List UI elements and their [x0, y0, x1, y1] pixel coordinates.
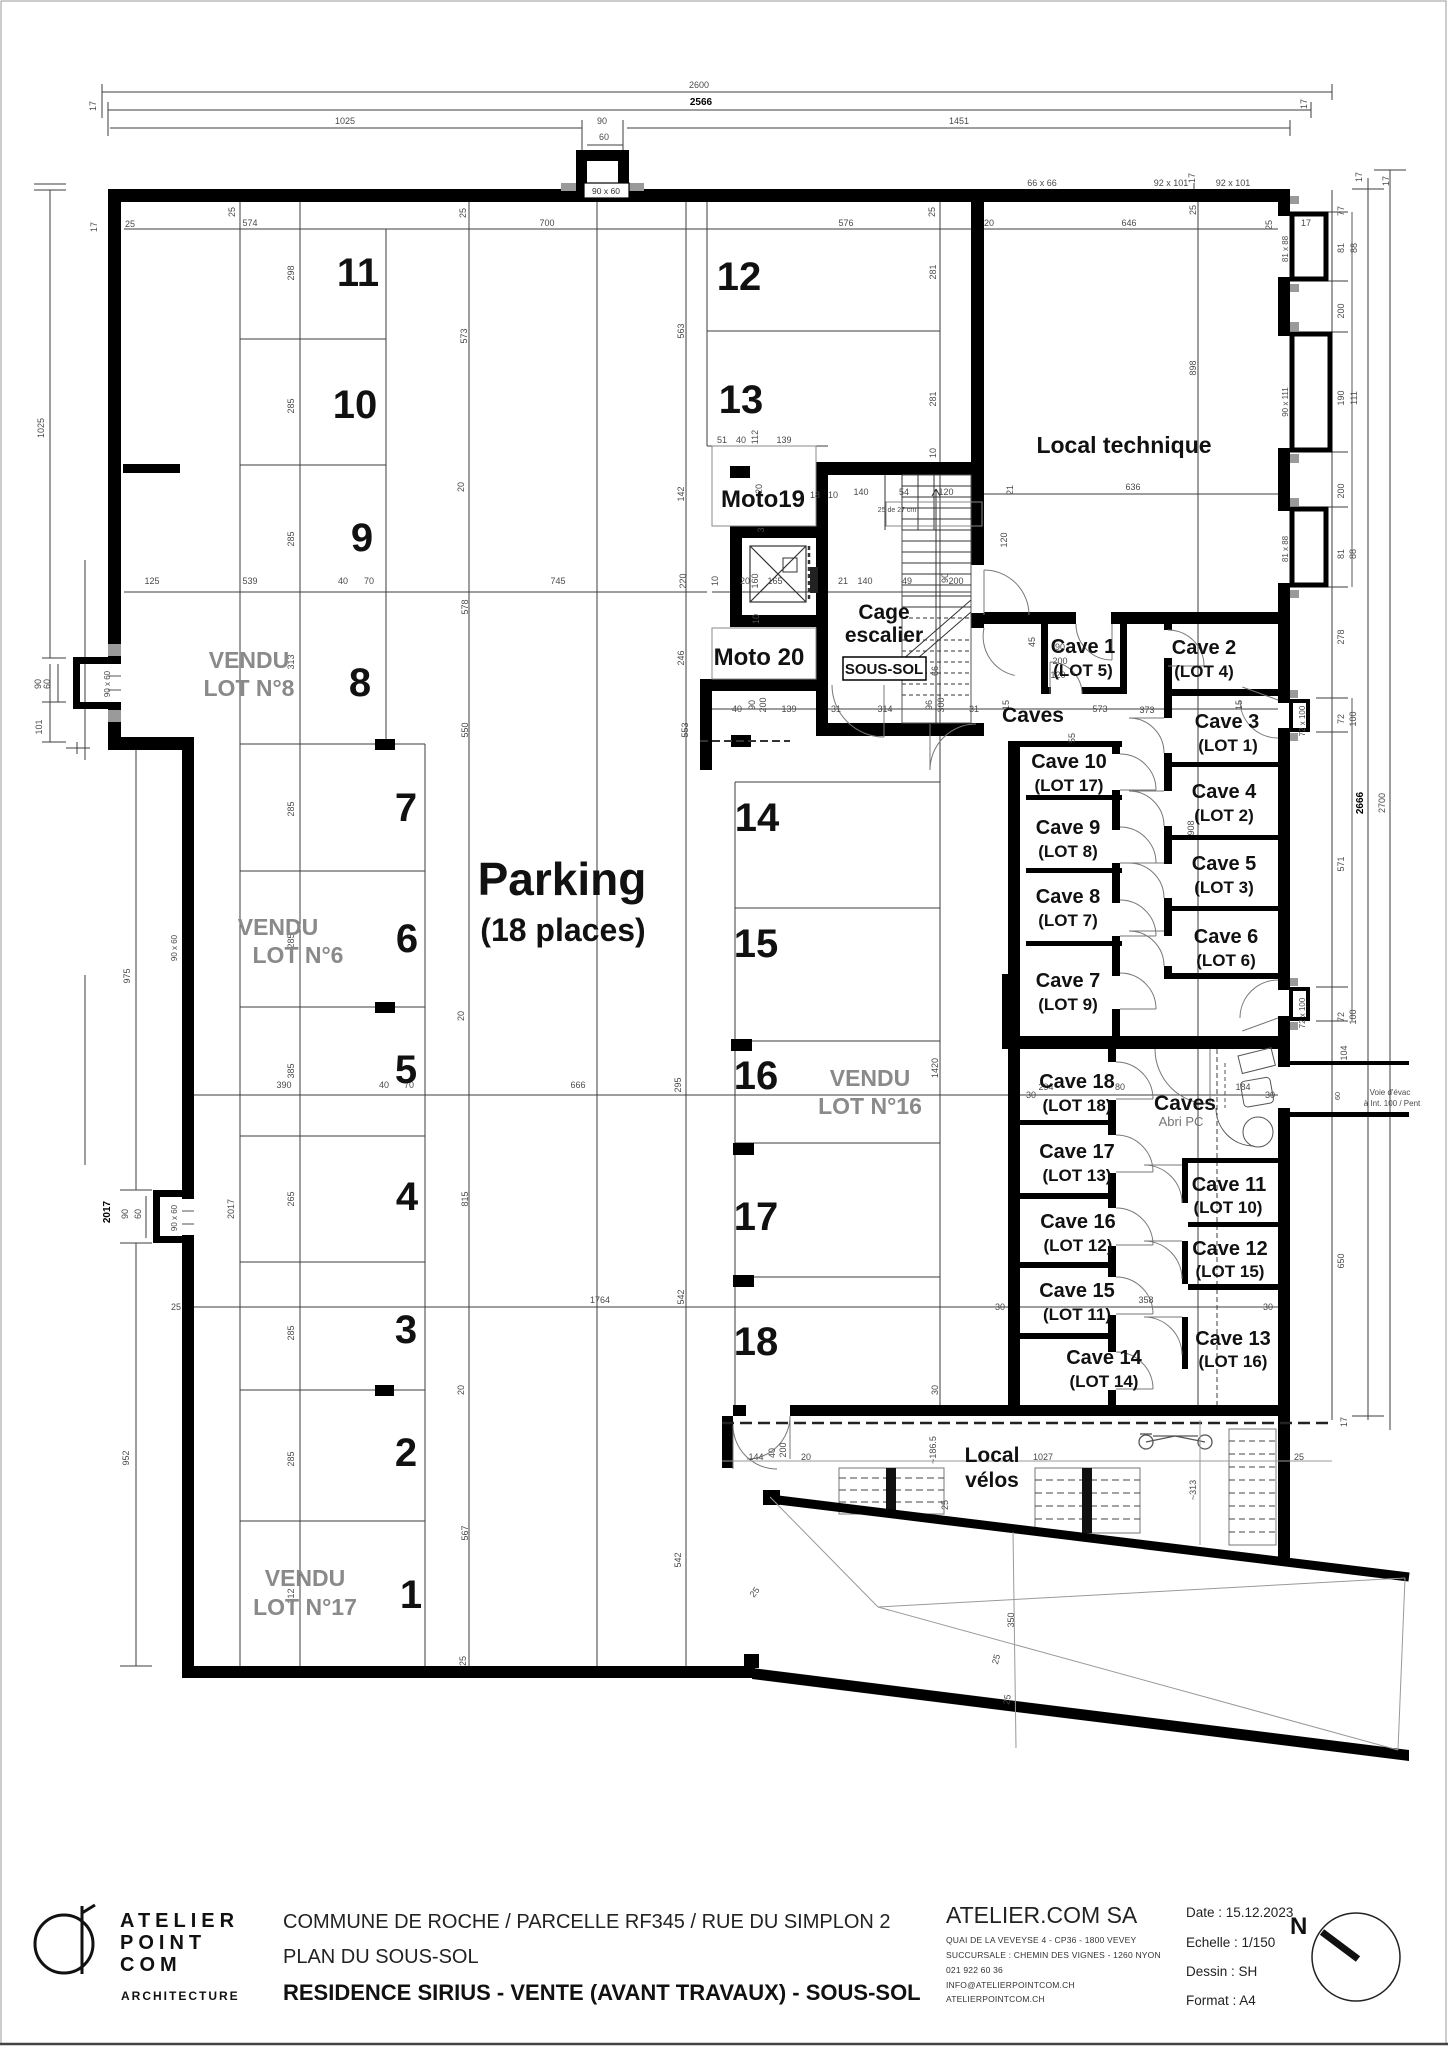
svg-text:(LOT 2): (LOT 2) — [1194, 806, 1254, 825]
svg-text:55: 55 — [1067, 733, 1077, 743]
svg-text:Cave 14: Cave 14 — [1066, 1347, 1142, 1369]
svg-text:25: 25 — [125, 219, 135, 229]
svg-text:200: 200 — [758, 697, 768, 712]
svg-text:Cave 8: Cave 8 — [1036, 886, 1101, 908]
svg-text:20: 20 — [456, 1385, 466, 1395]
svg-text:30: 30 — [930, 1385, 940, 1395]
svg-text:90 x 60: 90 x 60 — [170, 934, 179, 961]
svg-text:Cave 5: Cave 5 — [1192, 853, 1257, 875]
svg-text:Moto19: Moto19 — [721, 486, 805, 513]
svg-text:88: 88 — [1349, 243, 1359, 253]
svg-text:92 x 101: 92 x 101 — [1154, 178, 1189, 188]
svg-text:60: 60 — [599, 132, 609, 142]
svg-text:25 de 27 cm: 25 de 27 cm — [878, 507, 917, 514]
svg-text:60: 60 — [133, 1209, 143, 1219]
svg-text:ATELIER.COM SA: ATELIER.COM SA — [946, 1902, 1138, 1928]
svg-text:31: 31 — [969, 704, 979, 714]
svg-text:Moto 20: Moto 20 — [714, 644, 805, 671]
svg-text:285: 285 — [286, 531, 296, 546]
svg-text:(LOT 5): (LOT 5) — [1053, 661, 1113, 680]
svg-text:90: 90 — [747, 700, 757, 710]
svg-text:(LOT 16): (LOT 16) — [1199, 1352, 1268, 1371]
svg-text:666: 666 — [570, 1080, 585, 1090]
svg-text:(LOT 10): (LOT 10) — [1194, 1198, 1263, 1217]
svg-text:3: 3 — [395, 1308, 417, 1352]
svg-text:COM: COM — [120, 1954, 182, 1976]
svg-text:18: 18 — [734, 1320, 779, 1364]
svg-text:17: 17 — [1301, 218, 1311, 228]
svg-text:285: 285 — [286, 398, 296, 413]
svg-text:350: 350 — [1006, 1612, 1016, 1627]
svg-text:17: 17 — [734, 1195, 779, 1239]
svg-text:Cave 7: Cave 7 — [1036, 970, 1101, 992]
svg-text:650: 650 — [1336, 1253, 1346, 1268]
svg-text:92 x 101: 92 x 101 — [1216, 178, 1251, 188]
svg-text:285: 285 — [286, 1325, 296, 1340]
svg-text:Echelle : 1/150: Echelle : 1/150 — [1186, 1935, 1275, 1950]
svg-text:815: 815 — [460, 1191, 470, 1206]
svg-text:Cave 11: Cave 11 — [1192, 1174, 1267, 1196]
svg-text:VENDU: VENDU — [265, 1565, 346, 1591]
svg-text:Local: Local — [965, 1444, 1020, 1467]
svg-text:25: 25 — [458, 208, 468, 218]
svg-text:2017: 2017 — [226, 1199, 236, 1219]
svg-text:25: 25 — [1264, 220, 1274, 230]
svg-text:140: 140 — [857, 576, 872, 586]
svg-text:1027: 1027 — [1033, 1452, 1053, 1462]
svg-text:30: 30 — [1026, 1090, 1036, 1100]
svg-text:160: 160 — [750, 573, 760, 588]
svg-text:100: 100 — [1348, 1009, 1358, 1024]
svg-text:140: 140 — [853, 487, 868, 497]
svg-text:ARCHITECTURE: ARCHITECTURE — [121, 1989, 240, 2003]
svg-text:281: 281 — [928, 391, 938, 406]
svg-text:3: 3 — [756, 527, 766, 532]
svg-text:66: 66 — [930, 666, 940, 676]
svg-text:139: 139 — [781, 704, 796, 714]
svg-text:81 x 88: 81 x 88 — [1281, 235, 1290, 262]
svg-text:246: 246 — [676, 650, 686, 665]
svg-text:90 x 60: 90 x 60 — [103, 670, 112, 697]
svg-text:200: 200 — [948, 576, 963, 586]
svg-text:(LOT 13): (LOT 13) — [1043, 1166, 1112, 1185]
svg-text:54: 54 — [899, 487, 909, 497]
svg-text:(LOT 11): (LOT 11) — [1043, 1305, 1111, 1324]
svg-text:104: 104 — [1339, 1045, 1349, 1060]
svg-text:17: 17 — [1354, 172, 1364, 182]
svg-text:LOT N°16: LOT N°16 — [818, 1093, 922, 1119]
svg-text:RESIDENCE SIRIUS - VENTE (AVAN: RESIDENCE SIRIUS - VENTE (AVANT TRAVAUX)… — [283, 1980, 921, 2005]
svg-text:298: 298 — [286, 265, 296, 280]
svg-text:1764: 1764 — [590, 1295, 610, 1305]
svg-text:120: 120 — [938, 487, 953, 497]
svg-text:60: 60 — [1333, 1092, 1342, 1100]
svg-text:70: 70 — [364, 576, 374, 586]
svg-text:90: 90 — [597, 116, 607, 126]
svg-text:90: 90 — [120, 1209, 130, 1219]
svg-text:VENDU: VENDU — [209, 647, 290, 673]
svg-text:POINT: POINT — [120, 1932, 206, 1954]
svg-text:1420: 1420 — [930, 1058, 940, 1078]
svg-text:144: 144 — [748, 1452, 763, 1462]
svg-text:952: 952 — [121, 1450, 131, 1465]
svg-text:190: 190 — [1336, 390, 1346, 405]
svg-text:17: 17 — [1381, 176, 1391, 186]
svg-text:390: 390 — [276, 1080, 291, 1090]
svg-text:8: 8 — [349, 661, 371, 705]
svg-text:646: 646 — [1121, 218, 1136, 228]
svg-text:PLAN DU SOUS-SOL: PLAN DU SOUS-SOL — [283, 1946, 479, 1968]
svg-text:COMMUNE DE ROCHE / PARCELLE RF: COMMUNE DE ROCHE / PARCELLE RF345 / RUE … — [283, 1911, 891, 1933]
svg-text:LOT N°8: LOT N°8 — [204, 675, 295, 701]
svg-text:30: 30 — [995, 1302, 1005, 1312]
svg-text:QUAI DE LA VEVEYSE 4 - CP36 -: QUAI DE LA VEVEYSE 4 - CP36 - 1800 VEVEY — [946, 1935, 1136, 1945]
svg-text:Cave 4: Cave 4 — [1192, 781, 1257, 803]
svg-text:021 922 60 36: 021 922 60 36 — [946, 1965, 1003, 1975]
svg-text:573: 573 — [459, 328, 469, 343]
svg-text:Cave 17: Cave 17 — [1039, 1141, 1115, 1163]
svg-text:385: 385 — [286, 1063, 296, 1078]
svg-text:20: 20 — [456, 482, 466, 492]
svg-text:(LOT 12): (LOT 12) — [1044, 1236, 1113, 1255]
svg-text:2: 2 — [395, 1431, 417, 1475]
svg-text:31: 31 — [831, 704, 841, 714]
svg-text:700: 700 — [539, 218, 554, 228]
svg-text:(LOT 1): (LOT 1) — [1198, 736, 1258, 755]
svg-text:200: 200 — [1336, 303, 1346, 318]
svg-text:10: 10 — [828, 490, 838, 500]
svg-text:Caves: Caves — [1002, 704, 1064, 727]
svg-text:Caves: Caves — [1154, 1092, 1216, 1115]
svg-text:18: 18 — [810, 490, 820, 500]
svg-text:11: 11 — [337, 251, 379, 295]
svg-text:20: 20 — [984, 218, 994, 228]
svg-text:300: 300 — [936, 697, 946, 712]
svg-text:N: N — [1290, 1913, 1307, 1940]
svg-text:21: 21 — [1005, 485, 1015, 495]
svg-text:VENDU: VENDU — [830, 1065, 911, 1091]
svg-text:96: 96 — [924, 700, 934, 710]
svg-text:Local technique: Local technique — [1036, 432, 1211, 458]
svg-text:20: 20 — [740, 576, 750, 586]
svg-text:553: 553 — [680, 722, 690, 737]
svg-text:16: 16 — [734, 1054, 779, 1098]
svg-text:13: 13 — [719, 378, 764, 422]
svg-text:111: 111 — [1349, 391, 1359, 405]
svg-text:88: 88 — [1348, 549, 1358, 559]
svg-text:125: 125 — [144, 576, 159, 586]
svg-text:Cave 1: Cave 1 — [1051, 636, 1116, 658]
svg-text:578: 578 — [460, 599, 470, 614]
svg-text:(LOT 15): (LOT 15) — [1196, 1262, 1265, 1281]
svg-text:278: 278 — [1336, 629, 1346, 644]
svg-text:573: 573 — [1092, 704, 1107, 714]
svg-text:25: 25 — [940, 1500, 950, 1510]
svg-text:358: 358 — [1138, 1295, 1153, 1305]
svg-text:40: 40 — [379, 1080, 389, 1090]
svg-text:Cave 3: Cave 3 — [1195, 711, 1260, 733]
svg-text:542: 542 — [673, 1552, 683, 1567]
svg-text:25: 25 — [1188, 205, 1198, 215]
svg-text:7: 7 — [395, 786, 417, 830]
svg-text:17: 17 — [1299, 99, 1309, 109]
svg-text:5: 5 — [395, 1048, 417, 1092]
svg-text:(LOT 8): (LOT 8) — [1038, 842, 1098, 861]
svg-text:295: 295 — [673, 1077, 683, 1092]
svg-text:567: 567 — [460, 1525, 470, 1540]
svg-text:Parking: Parking — [478, 853, 647, 905]
svg-text:220: 220 — [678, 573, 688, 588]
svg-text:90 x 60: 90 x 60 — [170, 1204, 179, 1231]
svg-text:25: 25 — [227, 207, 237, 217]
svg-text:139: 139 — [776, 435, 791, 445]
svg-text:17: 17 — [1339, 1417, 1349, 1427]
svg-text:90 x 60: 90 x 60 — [592, 186, 620, 196]
svg-text:745: 745 — [550, 576, 565, 586]
svg-text:184: 184 — [1235, 1082, 1250, 1092]
svg-text:539: 539 — [242, 576, 257, 586]
svg-text:574: 574 — [242, 218, 257, 228]
svg-text:25: 25 — [1294, 1452, 1304, 1462]
svg-text:25: 25 — [1001, 1694, 1013, 1706]
svg-text:Format : A4: Format : A4 — [1186, 1993, 1256, 2008]
svg-text:(LOT 7): (LOT 7) — [1038, 911, 1098, 930]
svg-text:81: 81 — [1336, 549, 1346, 559]
svg-text:20: 20 — [456, 1011, 466, 1021]
svg-text:1025: 1025 — [335, 116, 355, 126]
svg-text:Cage: Cage — [858, 601, 909, 624]
svg-text:281: 281 — [928, 264, 938, 279]
svg-text:563: 563 — [676, 323, 686, 338]
svg-text:VENDU: VENDU — [238, 914, 319, 940]
svg-text:72 x 100: 72 x 100 — [1298, 705, 1307, 736]
svg-text:Cave 15: Cave 15 — [1039, 1280, 1115, 1302]
svg-text:LOT N°6: LOT N°6 — [253, 942, 344, 968]
svg-text:10: 10 — [751, 614, 761, 624]
svg-text:~313: ~313 — [1188, 1480, 1198, 1500]
svg-text:14: 14 — [735, 796, 780, 840]
svg-text:25: 25 — [171, 1302, 181, 1312]
svg-text:Date : 15.12.2023: Date : 15.12.2023 — [1186, 1905, 1293, 1920]
svg-text:571: 571 — [1336, 856, 1346, 871]
svg-text:200: 200 — [1336, 483, 1346, 498]
svg-text:Dessin : SH: Dessin : SH — [1186, 1964, 1257, 1979]
svg-text:542: 542 — [676, 1289, 686, 1304]
svg-text:100: 100 — [1348, 711, 1358, 726]
svg-text:SUCCURSALE : CHEMIN DES VIGNES: SUCCURSALE : CHEMIN DES VIGNES - 1260 NY… — [946, 1950, 1161, 1960]
svg-text:(LOT 18): (LOT 18) — [1043, 1096, 1112, 1115]
svg-text:314: 314 — [877, 704, 892, 714]
svg-text:285: 285 — [286, 801, 296, 816]
svg-text:40: 40 — [732, 704, 742, 714]
svg-text:Voie d'évac: Voie d'évac — [1370, 1088, 1411, 1097]
svg-text:72: 72 — [1336, 714, 1346, 724]
svg-text:(LOT 14): (LOT 14) — [1070, 1372, 1139, 1391]
svg-text:~186.5: ~186.5 — [928, 1436, 938, 1464]
svg-text:51: 51 — [717, 435, 727, 445]
svg-text:SOUS-SOL: SOUS-SOL — [845, 661, 923, 678]
svg-text:1: 1 — [400, 1573, 422, 1617]
svg-text:(18 places): (18 places) — [480, 912, 645, 948]
svg-text:30: 30 — [1265, 1090, 1275, 1100]
svg-text:90 x 111: 90 x 111 — [1281, 387, 1290, 417]
svg-text:636: 636 — [1125, 482, 1140, 492]
svg-text:ATELIER: ATELIER — [120, 1910, 239, 1932]
svg-text:2700: 2700 — [1377, 793, 1387, 813]
svg-text:40: 40 — [736, 435, 746, 445]
svg-text:550: 550 — [460, 722, 470, 737]
svg-text:60: 60 — [42, 679, 52, 689]
svg-text:576: 576 — [838, 218, 853, 228]
svg-text:49: 49 — [902, 576, 912, 586]
svg-text:142: 142 — [676, 486, 686, 501]
svg-text:81 x 88: 81 x 88 — [1281, 535, 1290, 562]
svg-text:(LOT 17): (LOT 17) — [1035, 776, 1104, 795]
svg-text:6: 6 — [396, 917, 418, 961]
svg-text:120: 120 — [999, 532, 1009, 547]
svg-text:21: 21 — [838, 576, 848, 586]
svg-text:25: 25 — [458, 1656, 468, 1666]
svg-text:LOT N°17: LOT N°17 — [253, 1594, 357, 1620]
svg-text:9: 9 — [351, 516, 373, 560]
svg-text:975: 975 — [122, 968, 132, 983]
svg-text:265: 265 — [286, 1191, 296, 1206]
svg-text:10: 10 — [333, 383, 378, 427]
svg-text:20: 20 — [801, 1452, 811, 1462]
svg-text:285: 285 — [286, 1451, 296, 1466]
svg-text:30: 30 — [1263, 1302, 1273, 1312]
svg-text:ATELIERPOINTCOM.CH: ATELIERPOINTCOM.CH — [946, 1994, 1045, 2004]
svg-text:12: 12 — [717, 255, 762, 299]
svg-text:101: 101 — [34, 719, 44, 734]
svg-text:vélos: vélos — [965, 1469, 1019, 1492]
svg-text:Cave 6: Cave 6 — [1194, 926, 1259, 948]
svg-text:à Int. 100 / Pent: à Int. 100 / Pent — [1364, 1099, 1421, 1108]
svg-text:Cave 12: Cave 12 — [1192, 1238, 1268, 1260]
svg-text:45: 45 — [1027, 637, 1037, 647]
svg-text:898: 898 — [1188, 360, 1198, 375]
svg-text:72 x 100: 72 x 100 — [1298, 997, 1307, 1028]
svg-text:INFO@ATELIERPOINTCOM.CH: INFO@ATELIERPOINTCOM.CH — [946, 1980, 1075, 1990]
svg-text:Cave 9: Cave 9 — [1036, 817, 1101, 839]
svg-text:Cave 18: Cave 18 — [1039, 1071, 1115, 1093]
svg-text:2666: 2666 — [1355, 791, 1366, 814]
svg-text:80: 80 — [1115, 1082, 1125, 1092]
svg-text:66 x 66: 66 x 66 — [1027, 178, 1057, 188]
svg-text:72: 72 — [1336, 1012, 1346, 1022]
svg-text:(LOT 3): (LOT 3) — [1194, 878, 1254, 897]
svg-text:165: 165 — [767, 576, 782, 586]
svg-text:(LOT 9): (LOT 9) — [1038, 995, 1098, 1014]
svg-text:1025: 1025 — [36, 418, 46, 438]
svg-text:17: 17 — [1187, 173, 1197, 183]
svg-text:Cave 10: Cave 10 — [1031, 751, 1107, 773]
svg-text:Cave 2: Cave 2 — [1172, 637, 1237, 659]
svg-text:Cave 16: Cave 16 — [1040, 1211, 1116, 1233]
svg-text:373: 373 — [1139, 705, 1154, 715]
svg-text:10: 10 — [710, 576, 720, 586]
svg-text:81: 81 — [1336, 243, 1346, 253]
svg-text:1451: 1451 — [949, 116, 969, 126]
svg-text:17: 17 — [89, 222, 99, 232]
svg-text:40: 40 — [767, 1448, 777, 1458]
svg-text:200: 200 — [778, 1442, 788, 1457]
svg-text:2566: 2566 — [690, 97, 713, 108]
svg-text:15: 15 — [734, 922, 779, 966]
svg-text:112: 112 — [750, 430, 760, 444]
svg-text:25: 25 — [927, 207, 937, 217]
svg-text:17: 17 — [88, 101, 98, 111]
svg-text:escalier: escalier — [845, 624, 923, 647]
svg-text:Cave 13: Cave 13 — [1195, 1328, 1271, 1350]
svg-text:10: 10 — [928, 448, 938, 458]
svg-text:77: 77 — [1336, 206, 1346, 216]
svg-text:2017: 2017 — [102, 1200, 113, 1223]
svg-text:2600: 2600 — [689, 80, 709, 90]
svg-text:Abri PC: Abri PC — [1159, 1114, 1204, 1129]
svg-text:15: 15 — [1234, 700, 1244, 710]
svg-text:40: 40 — [338, 576, 348, 586]
svg-text:4: 4 — [396, 1175, 419, 1219]
svg-text:(LOT 4): (LOT 4) — [1174, 662, 1234, 681]
svg-text:(LOT 6): (LOT 6) — [1196, 951, 1256, 970]
